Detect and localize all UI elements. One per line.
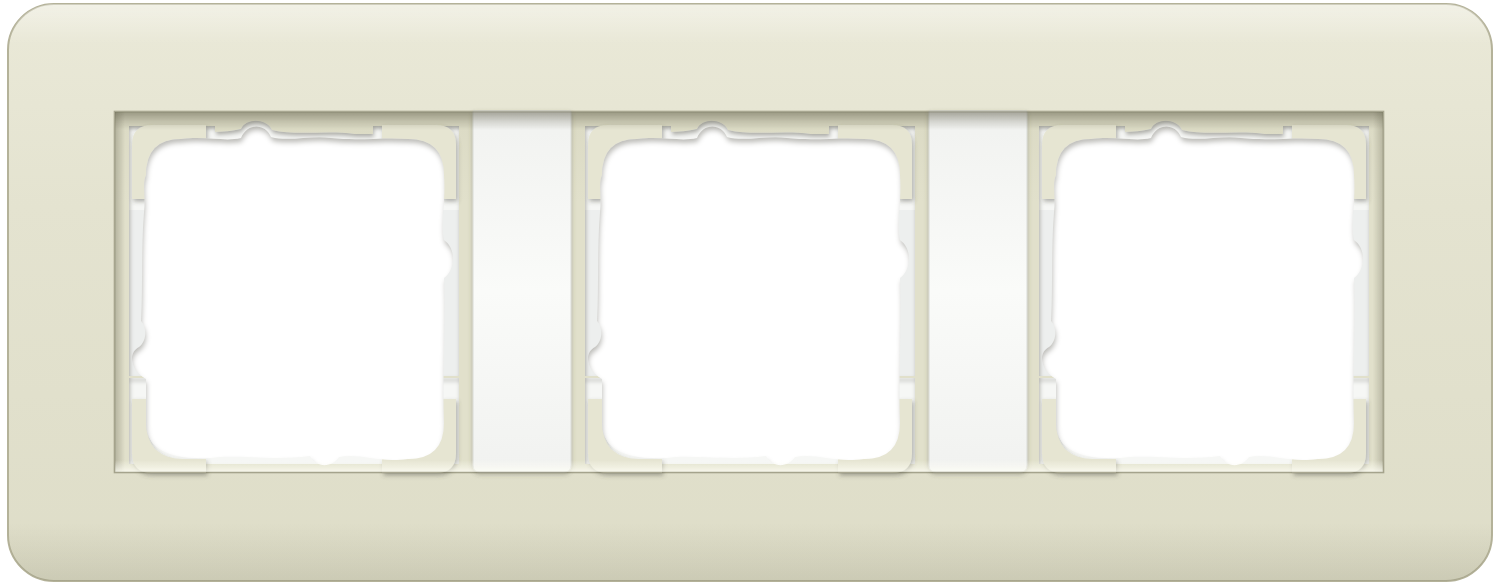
cover-frame-illustration: [0, 0, 1500, 587]
product-photo: [0, 0, 1500, 587]
divider-bar-2: [929, 111, 1027, 472]
opening-1: [129, 121, 459, 473]
divider-bar-1: [473, 111, 571, 472]
opening-2: [585, 121, 915, 473]
recess: [115, 111, 1384, 473]
opening-3: [1039, 121, 1369, 473]
